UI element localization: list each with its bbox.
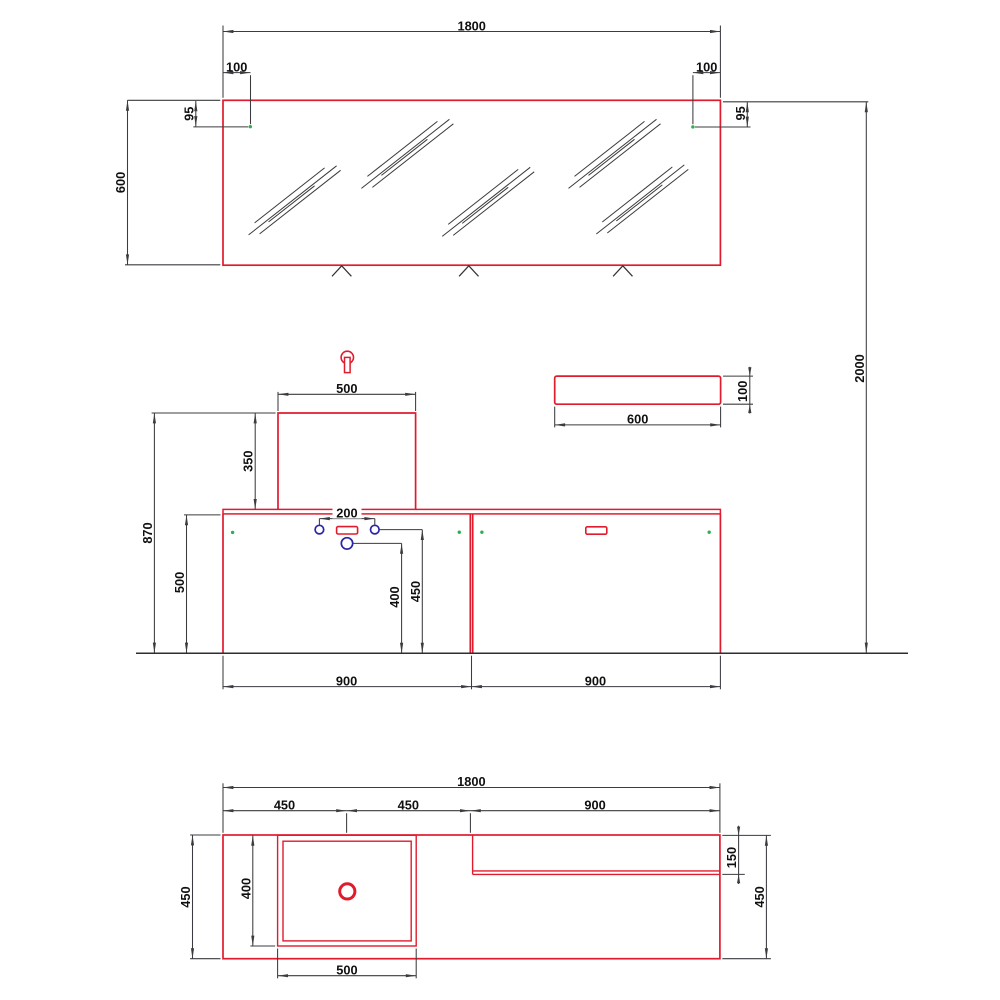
svg-text:2000: 2000 [852,354,867,382]
svg-text:350: 350 [241,451,256,472]
svg-text:870: 870 [140,522,155,543]
svg-text:200: 200 [336,505,357,520]
svg-text:1800: 1800 [457,18,485,33]
svg-text:900: 900 [584,797,605,812]
svg-text:450: 450 [398,797,419,812]
svg-text:95: 95 [181,107,196,121]
svg-text:600: 600 [627,412,648,427]
svg-text:100: 100 [696,59,717,74]
svg-text:500: 500 [172,572,187,593]
svg-text:500: 500 [336,381,357,396]
svg-text:150: 150 [724,847,739,868]
svg-text:95: 95 [733,106,748,120]
svg-text:400: 400 [387,586,402,607]
svg-text:450: 450 [752,886,767,907]
svg-text:600: 600 [113,172,128,193]
svg-text:450: 450 [408,581,423,602]
svg-text:450: 450 [274,797,295,812]
svg-text:400: 400 [238,878,253,899]
svg-text:1800: 1800 [457,774,485,789]
svg-text:100: 100 [226,59,247,74]
svg-text:900: 900 [336,673,357,688]
svg-text:500: 500 [336,962,357,977]
svg-text:900: 900 [585,673,606,688]
svg-text:100: 100 [735,381,750,402]
svg-text:450: 450 [178,886,193,907]
